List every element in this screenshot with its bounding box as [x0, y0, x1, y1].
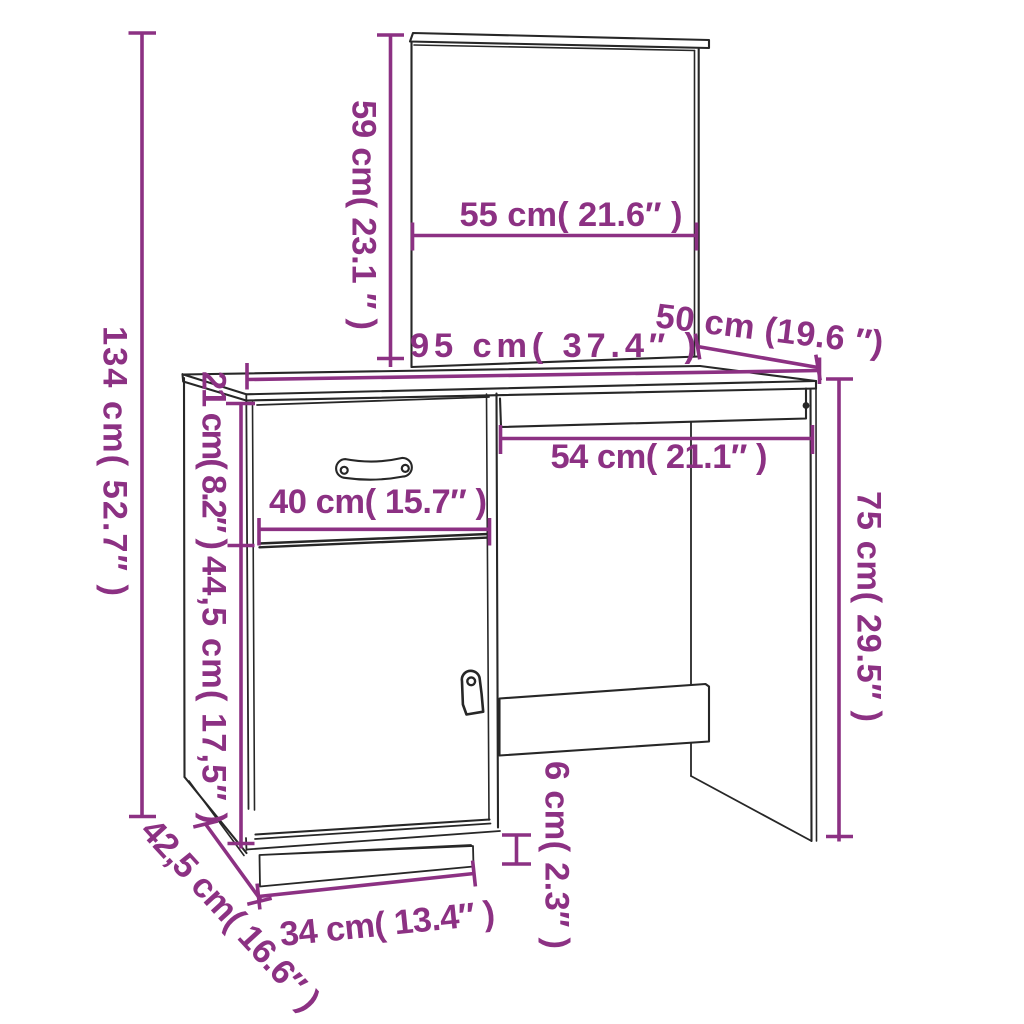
- svg-text:21 cm( 8.2″ ): 21 cm( 8.2″ ): [194, 371, 232, 550]
- svg-text:75 cm( 29.5″ ): 75 cm( 29.5″ ): [849, 491, 887, 722]
- svg-text:55 cm( 21.6″ ): 55 cm( 21.6″ ): [460, 196, 683, 234]
- svg-text:44,5 cm( 17,5″ ): 44,5 cm( 17,5″ ): [194, 556, 232, 824]
- svg-text:40 cm( 15.7″ ): 40 cm( 15.7″ ): [269, 483, 487, 521]
- svg-text:59 cm( 23.1 ″ ): 59 cm( 23.1 ″ ): [344, 100, 382, 330]
- svg-text:6 cm( 2.3″ ): 6 cm( 2.3″ ): [537, 761, 575, 949]
- svg-text:54 cm( 21.1″ ): 54 cm( 21.1″ ): [551, 438, 768, 476]
